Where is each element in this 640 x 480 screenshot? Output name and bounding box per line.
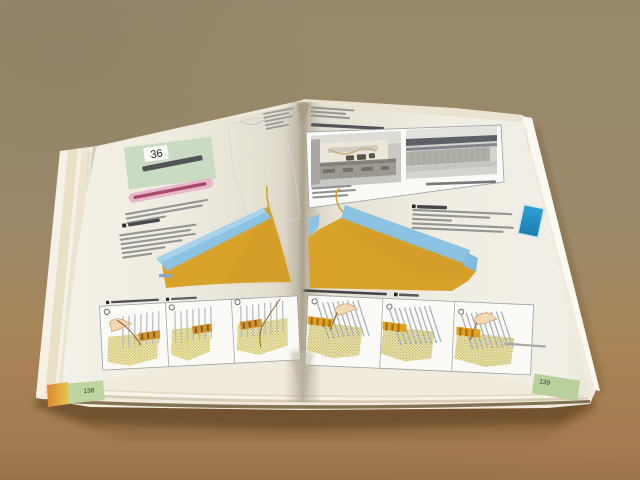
svg-text:36: 36 xyxy=(150,148,164,162)
svg-text:138: 138 xyxy=(83,387,95,395)
